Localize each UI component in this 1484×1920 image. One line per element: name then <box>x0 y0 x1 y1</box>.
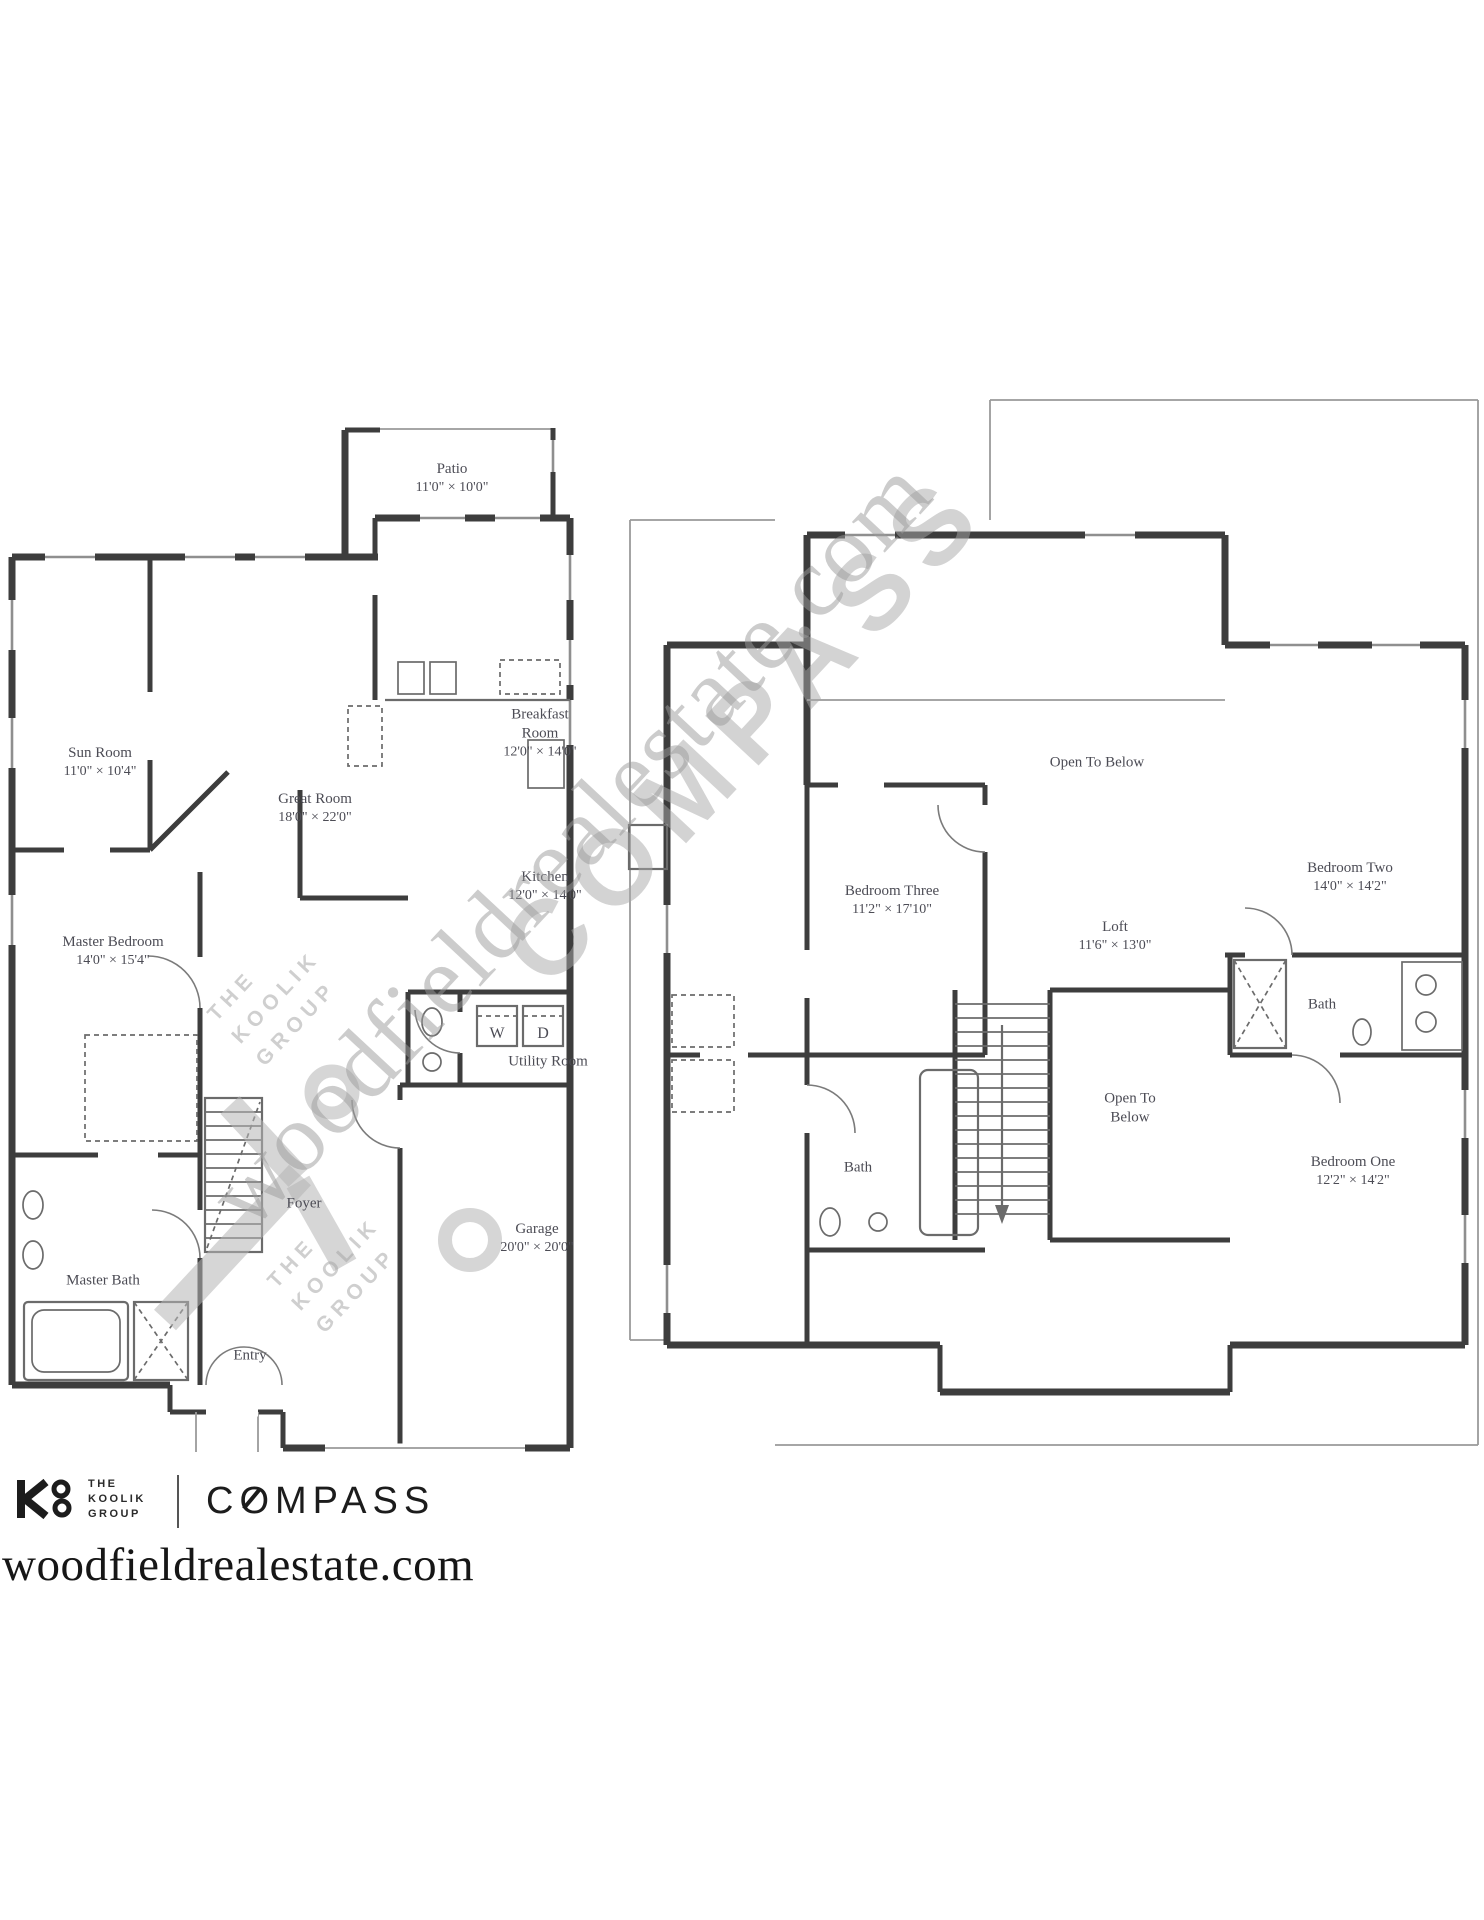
floorplan-flyer: W D <box>0 0 1484 1920</box>
master-bath-fixtures <box>23 1191 43 1269</box>
powder-room-fixtures <box>422 1008 442 1071</box>
floor2-reference-outline <box>630 400 1478 1445</box>
room-label-great-room: Great Room 18'0" × 22'0" <box>278 790 352 826</box>
room-label-bath-left: Bath <box>844 1159 872 1178</box>
room-label-foyer: Foyer <box>287 1195 322 1214</box>
svg-text:W: W <box>489 1025 505 1042</box>
dryer-box: D <box>523 1006 563 1046</box>
floor1-interior-walls <box>12 557 570 1448</box>
room-label-bath-right: Bath <box>1308 996 1336 1015</box>
room-label-bedroom-one: Bedroom One 12'2" × 14'2" <box>1311 1153 1396 1189</box>
washer-box: W <box>477 1006 517 1046</box>
website-text: woodfieldrealestate.com <box>2 1538 474 1592</box>
room-label-master-bedroom: Master Bedroom 14'0" × 15'4" <box>62 933 163 969</box>
footer-divider <box>177 1475 179 1528</box>
floor2-interior-walls <box>629 700 1465 1345</box>
floor2-exterior-walls <box>667 535 1465 1392</box>
room-label-open-to-below-stairwell: Open To Below <box>1090 1089 1170 1127</box>
room-label-utility-room: Utility Room <box>508 1053 588 1072</box>
room-label-garage: Garage 20'0" × 20'0" <box>500 1220 573 1256</box>
floor2-windows <box>667 535 1465 1313</box>
room-label-sun-room: Sun Room 11'0" × 10'4" <box>64 744 137 780</box>
second-floor-stairs <box>955 1004 1050 1224</box>
room-label-breakfast-room: Breakfast Room 12'0" × 14'0" <box>497 706 583 761</box>
room-label-master-bath: Master Bath <box>66 1272 140 1291</box>
bedroom-bath-fixtures <box>1234 960 1462 1050</box>
room-label-bedroom-three: Bedroom Three 11'2" × 17'10" <box>845 882 939 918</box>
floorplan-linework: W D <box>0 0 1484 1920</box>
room-label-bedroom-two: Bedroom Two 14'0" × 14'2" <box>1307 859 1393 895</box>
koolik-group-wordmark: THE KOOLIK GROUP <box>88 1477 146 1522</box>
room-label-loft: Loft 11'6" × 13'0" <box>1079 918 1152 954</box>
master-closet-dashed <box>85 1035 197 1141</box>
room-label-kitchen: Kitchen 12'0" × 14'0" <box>508 868 581 904</box>
room-label-open-to-below-top: Open To Below <box>1050 754 1145 773</box>
floor2-door-arcs <box>807 805 1340 1133</box>
footer-branding: THE KOOLIK GROUP COMPASS woodfieldreales… <box>0 1470 520 1610</box>
room-label-patio: Patio 11'0" × 10'0" <box>416 460 489 496</box>
koolik-group-logo <box>15 1478 79 1520</box>
room-label-entry: Entry <box>233 1347 266 1366</box>
compass-wordmark: COMPASS <box>206 1480 435 1523</box>
master-bathtub <box>24 1302 128 1380</box>
svg-text:D: D <box>537 1025 549 1042</box>
